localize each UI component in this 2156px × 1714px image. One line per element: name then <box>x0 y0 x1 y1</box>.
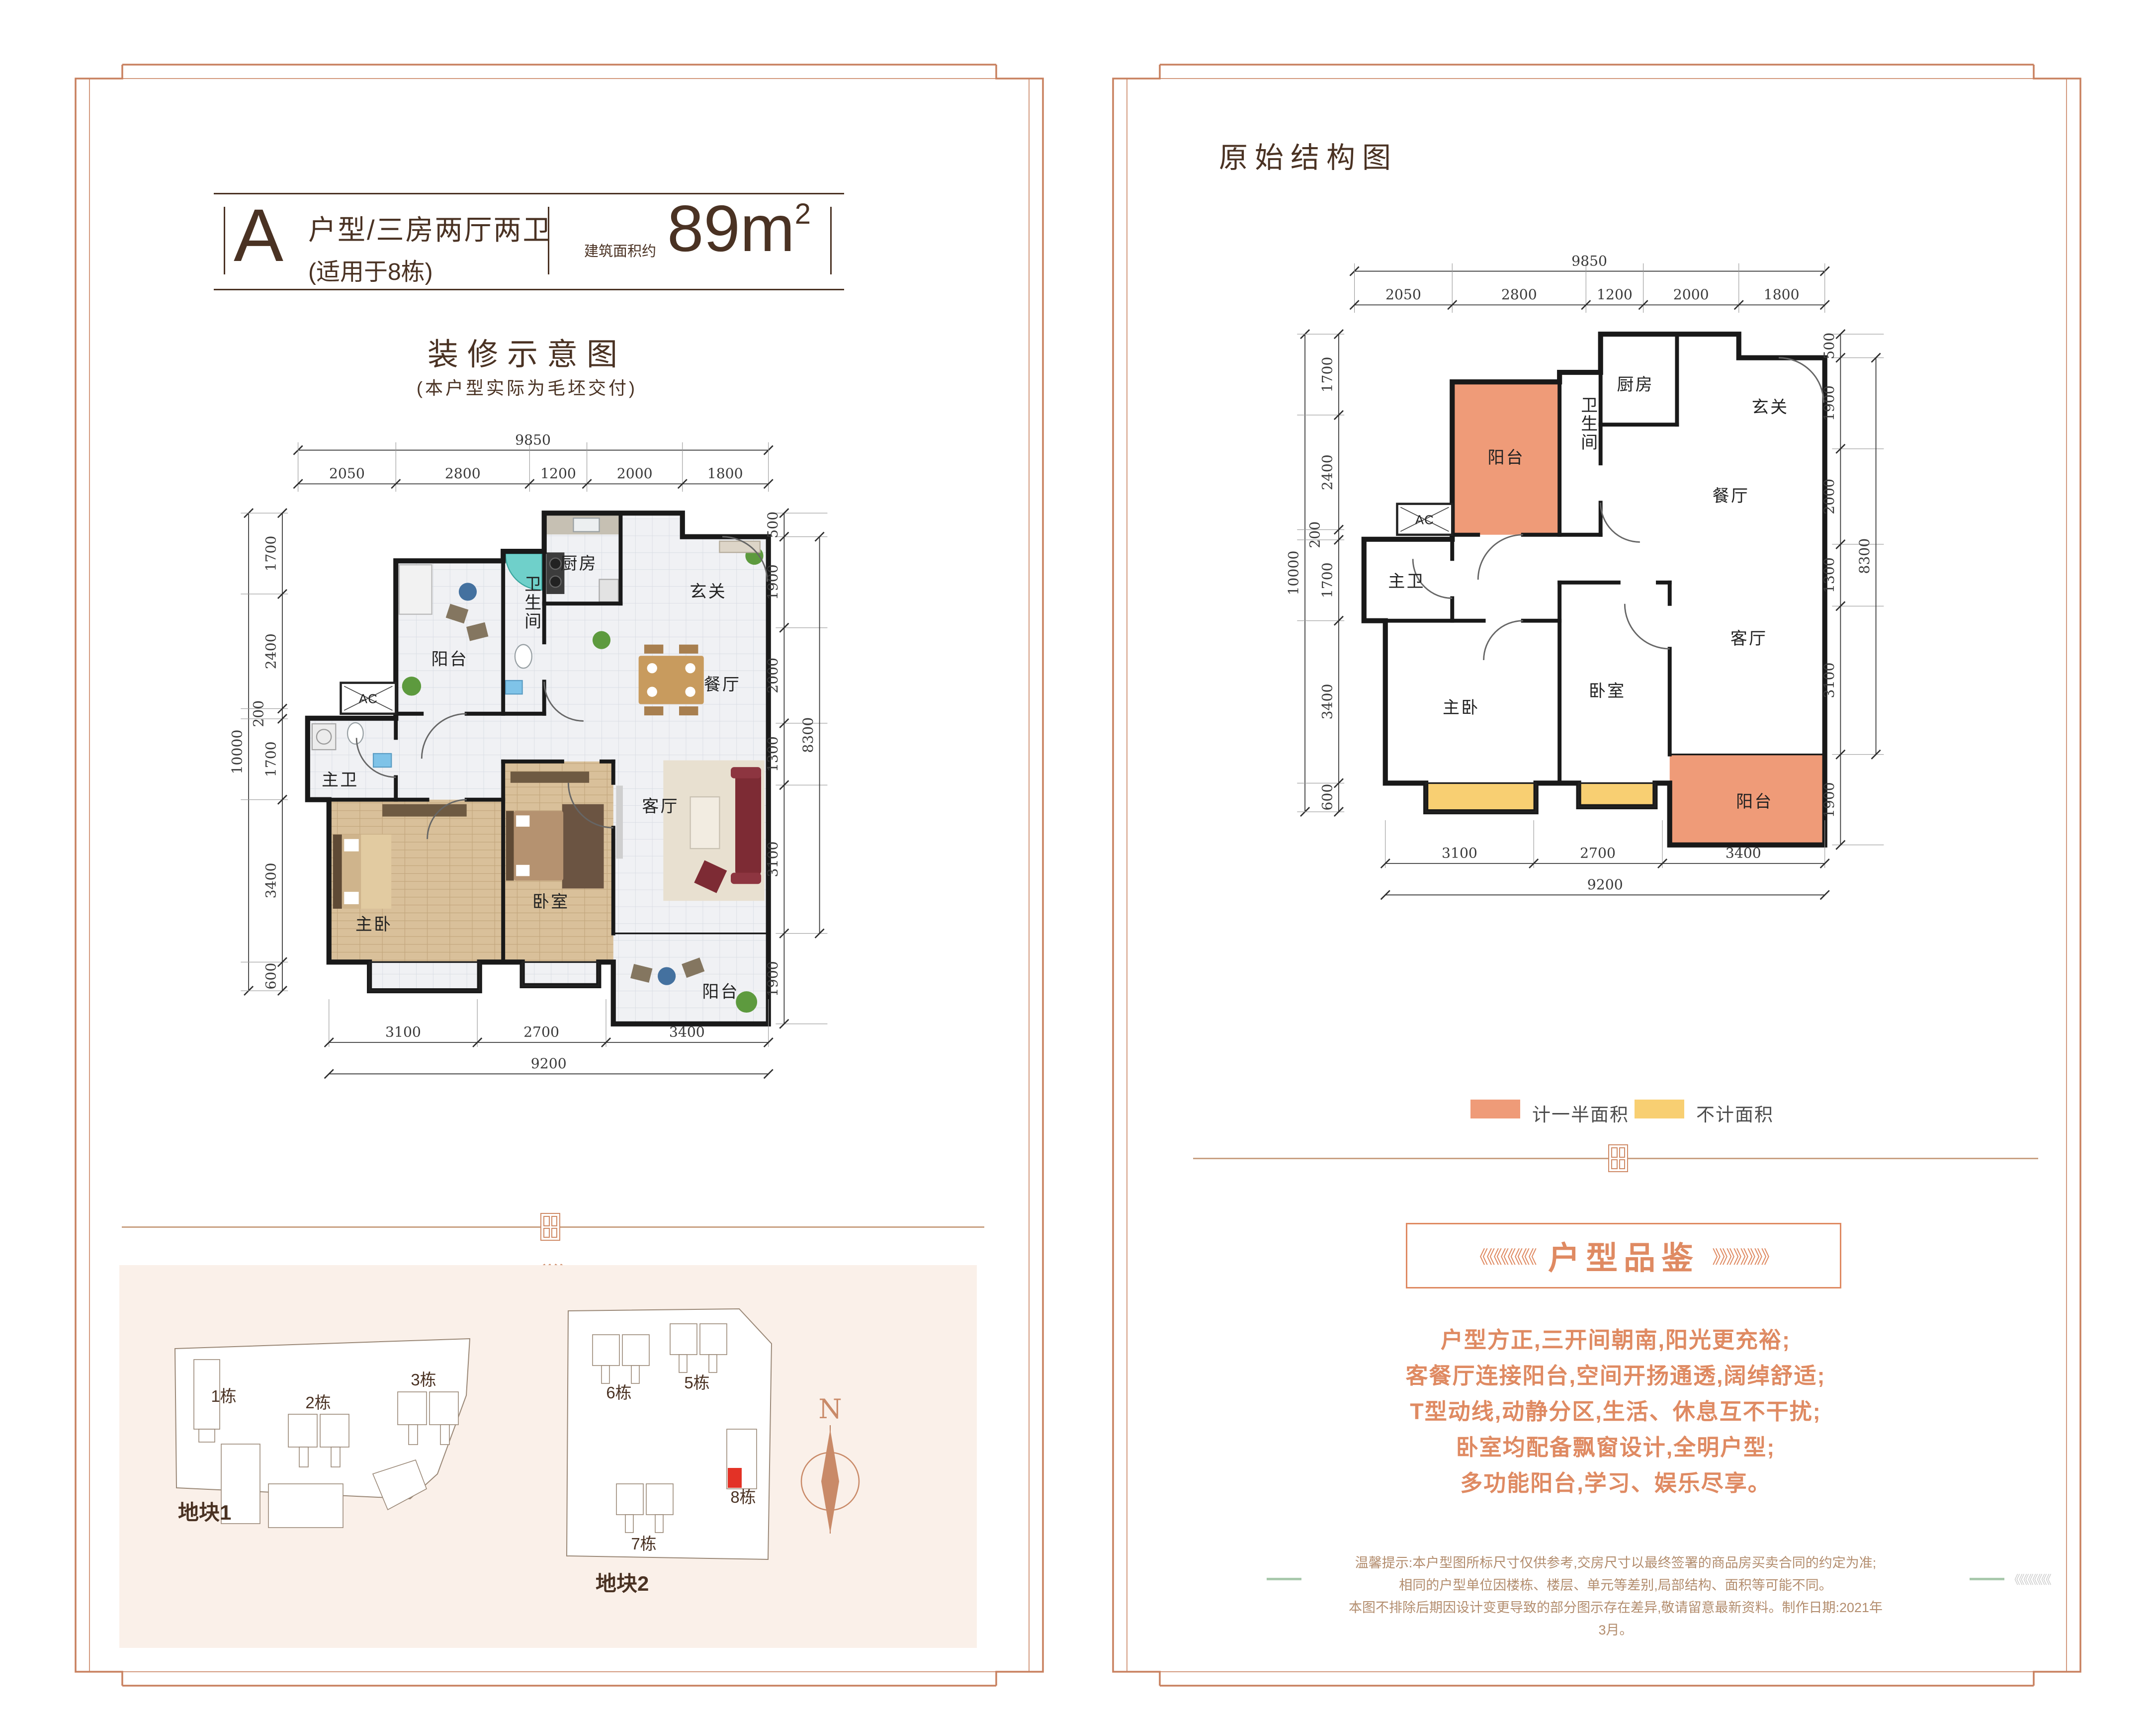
dim-label: 3100 <box>1442 845 1477 861</box>
building-5 <box>670 1324 697 1355</box>
unit-type-title: 户型/三房两厅两卫 <box>308 208 552 248</box>
dim-label: 1700 <box>262 536 279 572</box>
review-line: 多功能阳台,学习、娱乐尽享。 <box>1345 1465 1887 1501</box>
legend-no-count-label: 不计面积 <box>1696 1100 1774 1126</box>
dim-label: 3100 <box>385 1024 421 1040</box>
room-label-balcony-top: 阳台 <box>431 650 468 669</box>
building-2 <box>299 1447 308 1467</box>
ac-unit: AC <box>1397 504 1452 535</box>
disclaimer-line: 温馨提示:本户型图所标尺寸仅供参考,交房尺寸以最终签署的商品房买卖合同的约定为准… <box>1347 1552 1884 1574</box>
room-label-bedroom: 卧室 <box>532 893 570 912</box>
dim-line <box>1300 330 1309 816</box>
header-tick <box>830 207 832 274</box>
decorated-floor-plan: AC 9850 2050 2800 1200 2000 1800 10000 1… <box>214 418 860 1204</box>
dim-label: 2000 <box>1821 479 1837 514</box>
room-label-living: 客厅 <box>1730 629 1768 648</box>
legend-no-count-swatch <box>1635 1100 1684 1118</box>
building-label: 5栋 <box>684 1373 709 1392</box>
ac-label: AC <box>1415 512 1434 527</box>
review-line: 户型方正,三开间朝南,阳光更充裕; <box>1345 1322 1887 1358</box>
dim-label: 9850 <box>515 431 551 448</box>
plot2-label: 地块2 <box>596 1572 649 1595</box>
review-line: 卧室均配备飘窗设计,全明户型; <box>1345 1430 1887 1465</box>
header-bottom-rule <box>214 289 844 290</box>
room-label-bath: 卫生间 <box>522 575 541 631</box>
dim-label: 500 <box>1821 333 1837 359</box>
room-label-bedroom: 卧室 <box>1589 682 1626 700</box>
building-2 <box>288 1414 317 1447</box>
review-title: 户型品鉴 <box>1548 1233 1699 1279</box>
room-label-kitchen: 厨房 <box>560 554 598 573</box>
dim-label: 200 <box>250 700 266 727</box>
chevrons-left: 《《《《《《《《 <box>1470 1243 1535 1269</box>
dim-label: 1900 <box>1821 782 1837 818</box>
dim-label: 1700 <box>1319 357 1335 393</box>
review-lines: 户型方正,三开间朝南,阳光更充裕; 客餐厅连接阳台,空间开扬通透,阔绰舒适; T… <box>1345 1322 1887 1501</box>
plot1-label: 地块1 <box>178 1501 231 1524</box>
dim-label: 8300 <box>1856 538 1873 574</box>
dim-label: 200 <box>1306 521 1323 548</box>
area-exponent: 2 <box>795 198 811 230</box>
building-label: 3栋 <box>411 1371 436 1389</box>
dim-label: 1900 <box>1821 385 1837 421</box>
building-6 <box>593 1335 619 1366</box>
room-label-dining: 餐厅 <box>1713 487 1750 506</box>
dim-label: 3400 <box>262 863 279 899</box>
no-count-bay-master <box>1426 783 1536 812</box>
dim-label: 3100 <box>1821 663 1837 698</box>
structure-floor-plan: AC 9850 2050 2800 1200 2000 1800 10000 1… <box>1270 239 1916 1026</box>
dim-label: 2400 <box>262 633 279 669</box>
unit-header: A 户型/三房两厅两卫 (适用于8栋) 建筑面积约 89m2 <box>214 193 844 290</box>
building-2 <box>320 1414 349 1447</box>
highlighted-unit <box>728 1468 742 1488</box>
room-label-master-bath: 主卫 <box>1388 572 1425 591</box>
dim-label: 1300 <box>1821 557 1837 593</box>
dim-label: 1800 <box>1764 286 1800 303</box>
dim-label: 2000 <box>617 465 653 482</box>
room-label-entry: 玄关 <box>690 583 727 601</box>
room-label-balcony-bottom: 阳台 <box>1736 792 1773 811</box>
dim-label: 9200 <box>531 1055 567 1072</box>
dim-line <box>815 532 824 938</box>
dim-label: 3400 <box>1319 684 1335 720</box>
building-label: 7栋 <box>631 1535 656 1553</box>
room-label-master-bath: 主卫 <box>322 771 359 789</box>
unit-type-block: 户型/三房两厅两卫 (适用于8栋) <box>308 208 552 287</box>
building-5 <box>679 1355 687 1372</box>
dim-label: 600 <box>1319 784 1335 811</box>
dim-label: 3400 <box>669 1024 705 1040</box>
dim-label: 1900 <box>765 961 781 997</box>
ac-unit: AC <box>341 683 396 714</box>
chevrons-right: 》》》》》》》》 <box>1712 1243 1777 1269</box>
seal-ornament <box>1608 1144 1628 1172</box>
dim-label: 2400 <box>1319 454 1335 490</box>
room-label-dining: 餐厅 <box>704 675 741 694</box>
building-7 <box>646 1484 673 1515</box>
dim-label: 3400 <box>1725 845 1761 861</box>
seal-ornament <box>540 1213 560 1241</box>
dim-label: 2700 <box>1580 845 1616 861</box>
review-title-box: 《《《《《《《《 户型品鉴 》》》》》》》》 <box>1406 1223 1841 1288</box>
building-label: 2栋 <box>305 1393 331 1412</box>
review-line: T型动线,动静分区,生活、休息互不干扰; <box>1345 1394 1887 1430</box>
area-value: 89m2 <box>667 196 811 261</box>
header-tick <box>224 207 225 274</box>
dim-label: 2800 <box>1501 286 1537 303</box>
room-label-master-bed: 主卧 <box>355 915 393 934</box>
road-shape <box>268 1484 343 1528</box>
dim-label: 1700 <box>262 741 279 777</box>
room-label-kitchen: 厨房 <box>1617 375 1654 394</box>
building-7 <box>616 1484 643 1515</box>
decorated-plan-subtitle: (本户型实际为毛坯交付) <box>229 374 825 400</box>
building-3 <box>398 1392 427 1425</box>
green-dash <box>1267 1578 1301 1580</box>
dim-label: 10000 <box>229 730 246 774</box>
dim-label: 2050 <box>1385 286 1421 303</box>
building-1 <box>199 1429 215 1442</box>
dim-label: 1800 <box>707 465 743 482</box>
dim-label: 9200 <box>1587 876 1623 893</box>
room-label-master-bed: 主卧 <box>1443 698 1480 717</box>
building-3 <box>430 1392 458 1425</box>
building-label: 1栋 <box>211 1387 236 1405</box>
dim-label: 1700 <box>1319 562 1335 598</box>
dim-label: 9850 <box>1571 253 1607 269</box>
building-label: 8栋 <box>730 1488 756 1506</box>
brochure-page: A 户型/三房两厅两卫 (适用于8栋) 建筑面积约 89m2 装修示意图 (本户… <box>0 0 2156 1714</box>
unit-type-note: (适用于8栋) <box>308 252 552 287</box>
disclaimer-line: 本图不排除后期因设计变更导致的部分图示存在差异,敬请留意最新资料。制作日期:20… <box>1347 1597 1884 1641</box>
dim-label: 2700 <box>523 1024 559 1040</box>
area-label: 建筑面积约 <box>584 240 656 260</box>
building-6 <box>631 1366 639 1383</box>
room-label-bath: 卫生间 <box>1578 396 1597 452</box>
building-6 <box>602 1366 609 1383</box>
dim-label: 1200 <box>540 465 576 482</box>
dim-label: 8300 <box>800 717 816 753</box>
building-7 <box>625 1515 633 1533</box>
decorated-plan-title: 装修示意图 <box>229 329 825 374</box>
no-count-bay-bedroom <box>1579 783 1655 806</box>
disclaimer: 温馨提示:本户型图所标尺寸仅供参考,交房尺寸以最终签署的商品房买卖合同的约定为准… <box>1347 1552 1884 1641</box>
legend-half-area-swatch <box>1470 1100 1520 1118</box>
building-6 <box>622 1335 649 1366</box>
dim-label: 2000 <box>1673 286 1709 303</box>
building-5 <box>709 1355 717 1372</box>
dim-label: 1900 <box>765 564 781 600</box>
site-plan: 1栋 2栋 3栋 6栋 5栋 7栋 8栋 地块1 地块2 N <box>119 1265 977 1648</box>
disclaimer-line: 相同的户型单位因楼栋、楼层、单元等差别,局部结构、面积等可能不同。 <box>1347 1574 1884 1597</box>
structure-plan-title: 原始结构图 <box>1219 134 1398 176</box>
green-dash <box>1970 1578 2004 1580</box>
building-2 <box>331 1447 340 1467</box>
building-7 <box>655 1515 663 1533</box>
dim-label: 500 <box>765 512 781 538</box>
building-3 <box>440 1425 449 1445</box>
building-3 <box>409 1425 418 1445</box>
dim-label: 2800 <box>445 465 481 482</box>
room-label-balcony-bottom: 阳台 <box>702 983 739 1002</box>
legend-half-area-label: 计一半面积 <box>1532 1100 1629 1126</box>
ac-label: AC <box>359 691 378 706</box>
dim-label: 10000 <box>1286 551 1302 596</box>
room-label-living: 客厅 <box>642 797 679 816</box>
header-tick <box>548 207 549 274</box>
building-5 <box>700 1324 727 1355</box>
dim-label: 600 <box>262 963 279 990</box>
dim-label: 2050 <box>329 465 365 482</box>
building-label: 6栋 <box>606 1383 631 1402</box>
north-label: N <box>818 1393 842 1425</box>
dim-line <box>1872 353 1881 759</box>
review-line: 客餐厅连接阳台,空间开扬通透,阔绰舒适; <box>1345 1358 1887 1394</box>
dim-label: 1300 <box>765 736 781 772</box>
room-label-balcony-top: 阳台 <box>1487 448 1525 467</box>
room-label-entry: 玄关 <box>1752 398 1789 417</box>
dim-label: 1200 <box>1597 286 1633 303</box>
unit-type-letter: A <box>234 198 283 272</box>
side-deco-chevrons: 《《《《《《《《 <box>2008 1570 2050 1587</box>
dim-label: 3100 <box>765 842 781 877</box>
dim-label: 2000 <box>765 658 781 693</box>
dim-line <box>244 509 253 995</box>
